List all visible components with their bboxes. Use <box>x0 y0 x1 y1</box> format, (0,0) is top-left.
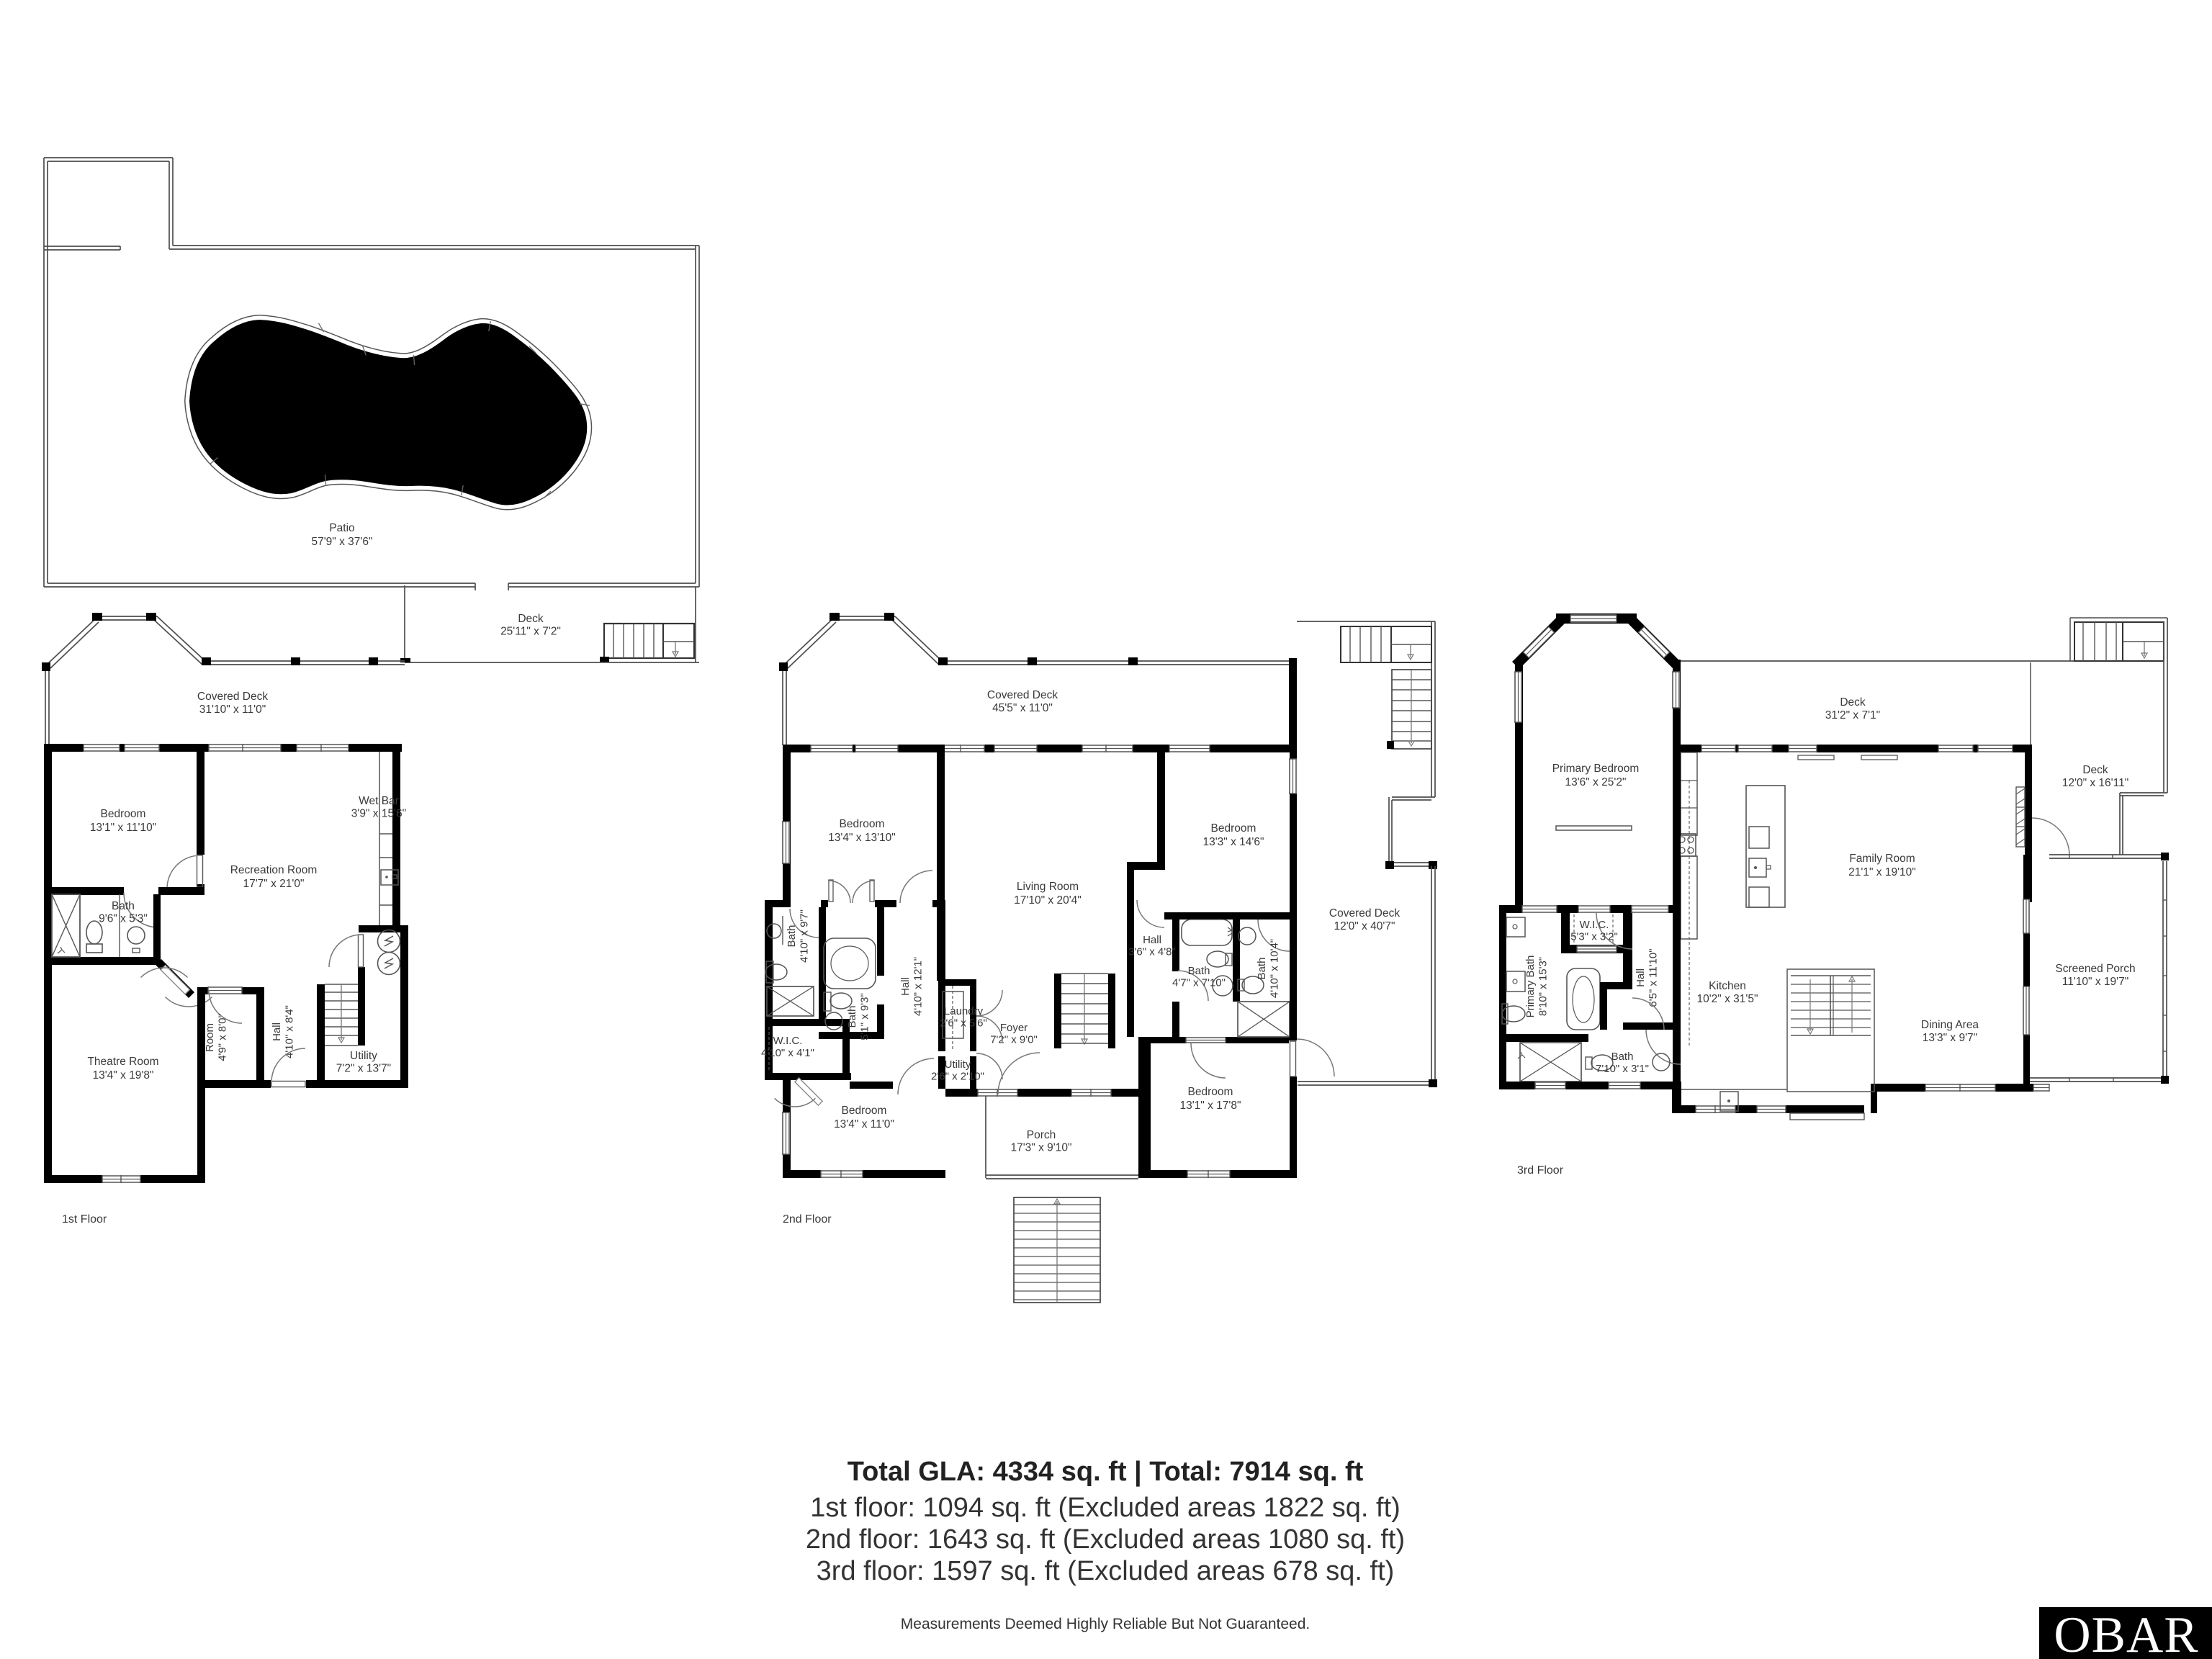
svg-text:Deck: Deck <box>1840 696 1866 709</box>
svg-text:13'3" x 14'6": 13'3" x 14'6" <box>1202 836 1264 848</box>
svg-text:10'2" x 31'5": 10'2" x 31'5" <box>1696 993 1758 1005</box>
svg-text:Covered Deck: Covered Deck <box>987 689 1058 701</box>
svg-text:Bedroom: Bedroom <box>101 808 146 820</box>
svg-text:Kitchen: Kitchen <box>1709 980 1746 992</box>
svg-text:2nd Floor: 2nd Floor <box>783 1213 832 1226</box>
svg-text:Primary Bath: Primary Bath <box>1524 956 1537 1018</box>
svg-text:17'7" x 21'0": 17'7" x 21'0" <box>243 878 304 890</box>
svg-text:Theatre Room: Theatre Room <box>87 1056 158 1068</box>
svg-text:31'2" x 7'1": 31'2" x 7'1" <box>1825 709 1880 721</box>
svg-text:4'10" x 12'1": 4'10" x 12'1" <box>912 957 925 1016</box>
svg-text:57'9" x 37'6": 57'9" x 37'6" <box>311 536 372 548</box>
svg-text:4'9" x 8'0": 4'9" x 8'0" <box>217 1014 229 1061</box>
svg-text:Covered Deck: Covered Deck <box>197 691 268 703</box>
svg-text:Bedroom: Bedroom <box>840 818 885 830</box>
svg-text:13'1" x 11'10": 13'1" x 11'10" <box>90 822 156 834</box>
svg-text:25'11" x 7'2": 25'11" x 7'2" <box>500 626 561 638</box>
svg-text:3'9" x 15'6": 3'9" x 15'6" <box>351 808 406 820</box>
svg-text:W.I.C.: W.I.C. <box>773 1035 803 1047</box>
svg-text:Bath: Bath <box>112 900 135 912</box>
svg-text:13'4" x 19'8": 13'4" x 19'8" <box>92 1069 153 1082</box>
svg-text:13'4" x 13'10": 13'4" x 13'10" <box>828 832 896 844</box>
svg-text:OBAR: OBAR <box>2054 1607 2198 1659</box>
svg-text:Deck: Deck <box>2082 764 2108 776</box>
svg-text:7'10" x 3'1": 7'10" x 3'1" <box>1596 1063 1649 1075</box>
svg-text:Hall: Hall <box>899 977 912 996</box>
svg-text:1st floor: 1094 sq. ft (Exclud: 1st floor: 1094 sq. ft (Excluded areas 1… <box>810 1493 1401 1523</box>
svg-text:5'3" x 3'2": 5'3" x 3'2" <box>1570 931 1618 943</box>
svg-text:Patio: Patio <box>329 522 354 534</box>
svg-text:Dining Area: Dining Area <box>1921 1019 1979 1031</box>
svg-text:12'0" x 40'7": 12'0" x 40'7" <box>1334 920 1395 932</box>
svg-text:13'4" x 11'0": 13'4" x 11'0" <box>834 1118 894 1130</box>
svg-text:31'10" x 11'0": 31'10" x 11'0" <box>199 703 266 716</box>
svg-text:Total GLA: 4334 sq. ft | Total: Total GLA: 4334 sq. ft | Total: 7914 sq.… <box>848 1457 1364 1487</box>
svg-text:7'2" x 13'7": 7'2" x 13'7" <box>336 1063 391 1075</box>
svg-text:Hall: Hall <box>271 1022 283 1041</box>
svg-text:Bath: Bath <box>1256 958 1268 980</box>
svg-text:Family Room: Family Room <box>1849 853 1915 865</box>
svg-text:Porch: Porch <box>1027 1129 1056 1141</box>
svg-text:13'1" x 17'8": 13'1" x 17'8" <box>1179 1100 1241 1112</box>
svg-text:6'5" x 11'10": 6'5" x 11'10" <box>1647 948 1660 1007</box>
svg-text:Bedroom: Bedroom <box>842 1105 887 1117</box>
svg-text:Living Room: Living Room <box>1017 881 1079 893</box>
svg-text:11'10" x 19'7": 11'10" x 19'7" <box>2062 976 2128 988</box>
svg-text:13'6" x 25'2": 13'6" x 25'2" <box>1565 776 1626 788</box>
svg-text:Foyer: Foyer <box>1000 1022 1028 1034</box>
svg-text:2'6" x 2'10": 2'6" x 2'10" <box>931 1071 984 1083</box>
svg-text:Bath: Bath <box>1611 1051 1634 1063</box>
svg-text:5'1" x 9'3": 5'1" x 9'3" <box>859 993 871 1040</box>
svg-text:Recreation Room: Recreation Room <box>230 864 318 876</box>
svg-text:3'6" x 4'8": 3'6" x 4'8" <box>1128 946 1176 958</box>
svg-text:17'10" x 20'4": 17'10" x 20'4" <box>1014 894 1082 907</box>
svg-text:12'0" x 16'11": 12'0" x 16'11" <box>2062 777 2128 789</box>
svg-text:4'10" x 10'4": 4'10" x 10'4" <box>1269 939 1281 998</box>
svg-text:Covered Deck: Covered Deck <box>1329 907 1400 920</box>
svg-text:Measurements Deemed Highly Rel: Measurements Deemed Highly Reliable But … <box>901 1616 1310 1632</box>
svg-text:Deck: Deck <box>518 613 544 625</box>
svg-text:Wet Bar: Wet Bar <box>359 795 399 807</box>
svg-text:1st Floor: 1st Floor <box>62 1213 107 1226</box>
svg-text:Bath: Bath <box>1188 965 1210 977</box>
svg-text:2nd floor: 1643 sq. ft (Exclud: 2nd floor: 1643 sq. ft (Excluded areas 1… <box>806 1524 1405 1555</box>
svg-text:17'3" x 9'10": 17'3" x 9'10" <box>1010 1142 1071 1154</box>
svg-text:Bath: Bath <box>846 1006 858 1028</box>
svg-text:13'3" x 9'7": 13'3" x 9'7" <box>1923 1032 1977 1044</box>
svg-text:3rd Floor: 3rd Floor <box>1517 1164 1564 1177</box>
svg-text:Bedroom: Bedroom <box>1211 822 1256 835</box>
svg-text:2'6" x 5'6": 2'6" x 5'6" <box>940 1017 987 1030</box>
svg-text:Utility: Utility <box>350 1050 377 1062</box>
svg-text:45'5" x 11'0": 45'5" x 11'0" <box>992 702 1053 714</box>
svg-text:Primary Bedroom: Primary Bedroom <box>1552 763 1640 775</box>
svg-text:21'1" x 19'10": 21'1" x 19'10" <box>1848 866 1916 878</box>
svg-text:Hall: Hall <box>1143 934 1161 946</box>
svg-text:Bedroom: Bedroom <box>1188 1086 1233 1098</box>
svg-text:Room: Room <box>204 1023 216 1052</box>
svg-text:Bath: Bath <box>786 925 798 948</box>
svg-text:9'6" x 5'3": 9'6" x 5'3" <box>99 913 148 925</box>
svg-text:3rd floor: 1597 sq. ft (Exclud: 3rd floor: 1597 sq. ft (Excluded areas 6… <box>817 1556 1395 1586</box>
svg-text:8'10" x 15'3": 8'10" x 15'3" <box>1537 957 1550 1016</box>
svg-text:4'7" x 7'10": 4'7" x 7'10" <box>1172 977 1226 989</box>
svg-text:Utility: Utility <box>945 1058 971 1071</box>
svg-text:Hall: Hall <box>1635 968 1647 987</box>
svg-text:W.I.C.: W.I.C. <box>1580 919 1609 931</box>
svg-text:7'2" x 9'0": 7'2" x 9'0" <box>990 1034 1038 1046</box>
svg-text:Screened Porch: Screened Porch <box>2055 963 2135 975</box>
svg-text:4'10" x 9'7": 4'10" x 9'7" <box>799 909 811 963</box>
